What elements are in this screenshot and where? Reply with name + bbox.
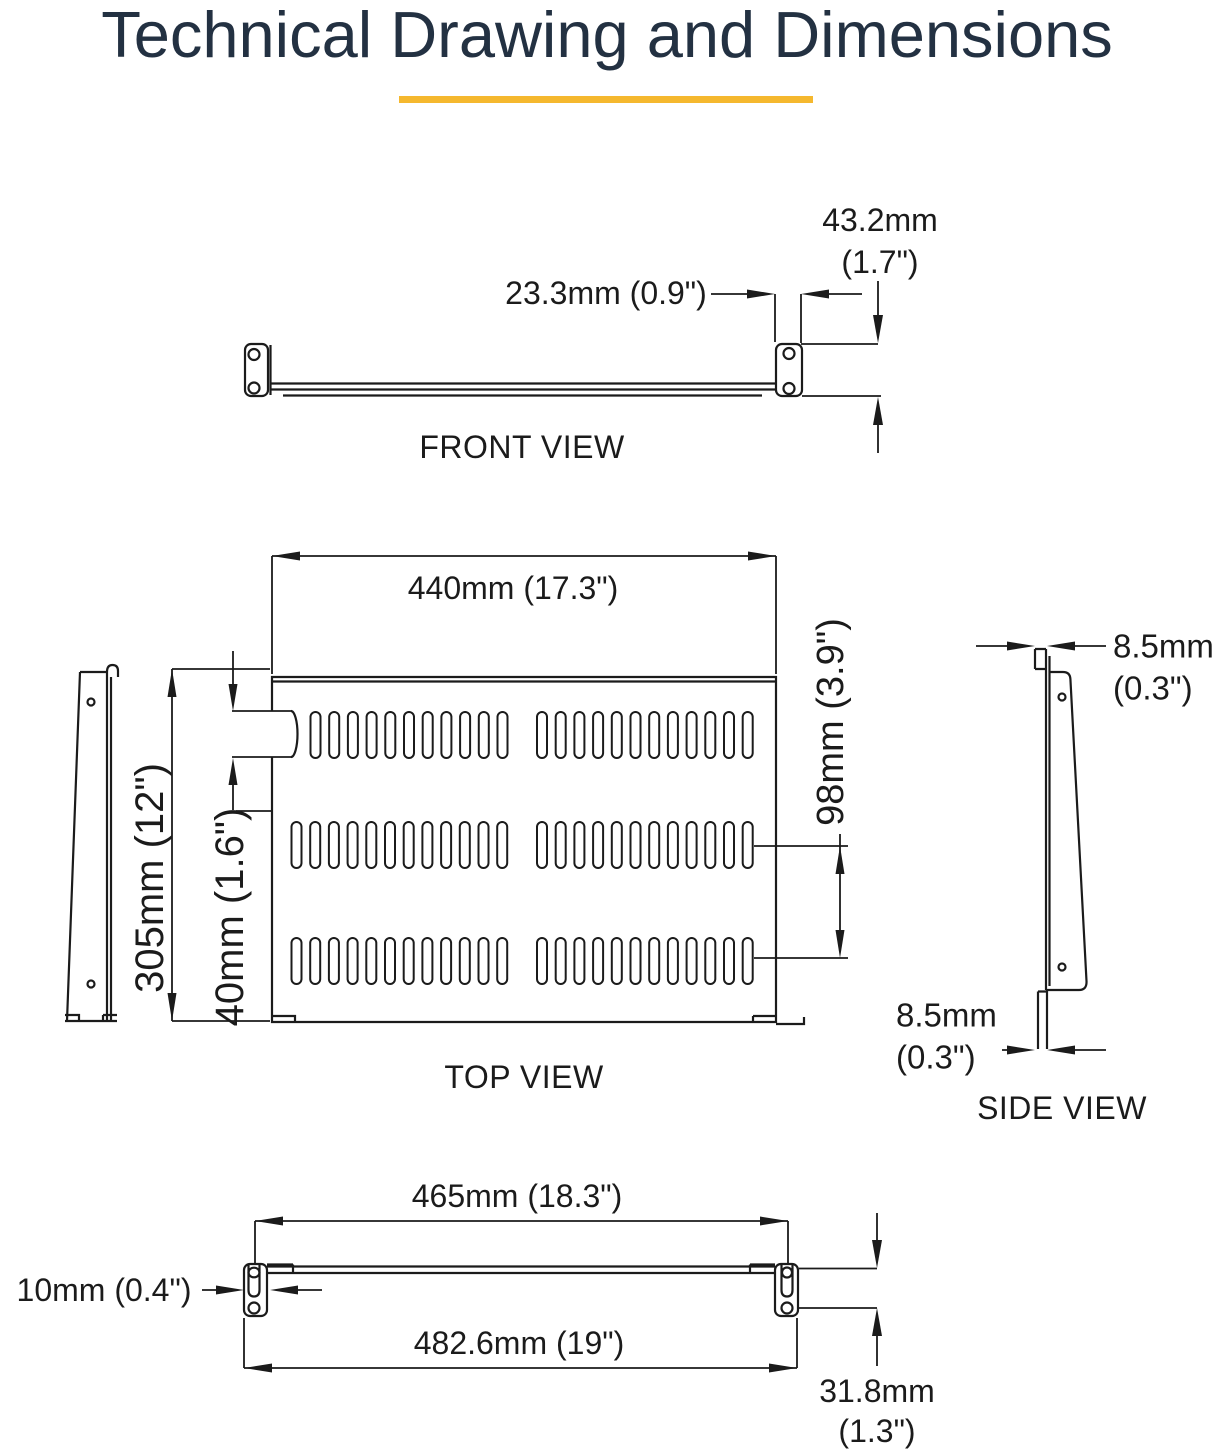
vent-slots	[292, 712, 753, 984]
vent-slot	[422, 822, 432, 868]
vent-slot	[422, 938, 432, 984]
vent-slot	[593, 938, 603, 984]
front-right-bracket	[776, 344, 802, 396]
vent-slot	[631, 938, 641, 984]
dim-height-43mm: 43.2mm (1.7")	[801, 202, 938, 453]
left-rail-hole-top	[88, 699, 95, 706]
arrowhead-up	[872, 1308, 882, 1336]
vent-slot	[292, 938, 302, 984]
arrowhead-left	[272, 552, 300, 561]
vent-slot	[631, 712, 641, 758]
dim-lines	[255, 1221, 788, 1263]
vent-slot	[366, 822, 376, 868]
rail-hole-bottom	[1059, 964, 1066, 971]
dim-notch-label: 40mm (1.6")	[208, 808, 252, 1027]
dim-height-31.8mm: 31.8mm (1.3")	[799, 1213, 935, 1449]
vent-slot	[498, 712, 508, 758]
side-view-part	[1035, 649, 1087, 1049]
vent-slot	[385, 938, 395, 984]
rail-profile	[1035, 649, 1087, 1049]
arrowhead-right	[216, 1286, 244, 1295]
arrowhead-right	[747, 290, 775, 299]
arrowhead-right	[769, 1364, 797, 1373]
dim-inner-width-465mm: 465mm (18.3")	[255, 1178, 788, 1263]
top-view-label: TOP VIEW	[444, 1059, 604, 1095]
dim-outer-width-label: 482.6mm (19")	[414, 1325, 625, 1361]
vent-slot	[441, 712, 451, 758]
dim-depth-label: 305mm (12")	[128, 763, 172, 993]
dim-outer-width-482mm: 482.6mm (19")	[244, 1318, 797, 1373]
dim-bottom-lip-8.5mm: 8.5mm (0.3")	[896, 997, 1106, 1076]
arrowhead-left	[1047, 642, 1075, 651]
vent-slot	[574, 938, 584, 984]
arrowhead-right	[1007, 642, 1035, 651]
bottom-right-hole-bottom	[782, 1303, 793, 1314]
bottom-view-part	[244, 1264, 798, 1316]
arrowhead-right	[760, 1217, 788, 1226]
bottom-left-hole-top	[249, 1268, 260, 1278]
arrowhead-down	[168, 993, 177, 1021]
top-view: 440mm (17.3") 305mm (12") 40mm (1.6") 98…	[65, 552, 852, 1096]
arrowhead-left	[244, 1364, 272, 1373]
arrowhead-left	[1047, 1046, 1075, 1055]
vent-slot	[574, 822, 584, 868]
front-right-hole-bottom	[784, 383, 795, 394]
arrowhead-down	[872, 1240, 882, 1268]
dim-lines	[232, 651, 291, 811]
vent-slot	[537, 938, 547, 984]
vent-slot	[441, 938, 451, 984]
vent-slot	[668, 822, 678, 868]
vent-slot	[404, 938, 414, 984]
vent-slot	[367, 712, 377, 758]
front-view: 23.3mm (0.9") 43.2mm (1.7") FRONT VIEW	[245, 202, 938, 465]
arrowhead-right	[1007, 1046, 1035, 1055]
vent-slot	[310, 822, 320, 868]
vent-slot	[460, 938, 470, 984]
vent-slot	[687, 938, 697, 984]
front-left-hole-top	[249, 349, 260, 360]
vent-slot	[460, 712, 470, 758]
vent-slot	[311, 712, 321, 758]
page-title: Technical Drawing and Dimensions	[101, 0, 1113, 71]
vent-slot	[649, 822, 659, 868]
dim-notch-40mm: 40mm (1.6")	[208, 651, 291, 1026]
vent-slot	[743, 822, 753, 868]
top-view-part	[65, 665, 804, 1024]
vent-slot	[556, 822, 566, 868]
vent-slot	[649, 938, 659, 984]
vent-slot	[705, 822, 715, 868]
vent-slot	[743, 712, 753, 758]
dim-height-mm-label: 31.8mm	[819, 1373, 935, 1409]
vent-slot	[479, 712, 489, 758]
vent-slot	[724, 938, 734, 984]
vent-slot	[404, 712, 414, 758]
vent-slot	[537, 822, 547, 868]
dim-vent-spacing-label: 98mm (3.9")	[810, 618, 852, 826]
vent-slot	[631, 822, 641, 868]
left-rail	[65, 665, 118, 1021]
vent-slot	[385, 712, 395, 758]
dim-bottom-lip-in-label: (0.3")	[896, 1039, 976, 1076]
vent-slot	[537, 712, 547, 758]
vent-slot	[612, 712, 622, 758]
arrowhead-right	[748, 552, 776, 561]
vent-slot	[649, 712, 659, 758]
arrowhead-down	[229, 684, 238, 711]
dim-top-lip-8.5mm: 8.5mm (0.3")	[976, 628, 1214, 707]
dim-lines	[754, 834, 848, 958]
left-rail-hole-bottom	[88, 981, 95, 988]
vent-slot	[743, 938, 753, 984]
front-view-part	[245, 344, 802, 396]
arrowhead-up	[229, 758, 238, 785]
title-underline	[399, 96, 813, 103]
arrowhead-up	[873, 397, 883, 425]
dim-top-lip-mm-label: 8.5mm	[1113, 628, 1214, 665]
vent-slot	[329, 938, 339, 984]
dim-lines	[711, 294, 862, 343]
vent-slot	[612, 938, 622, 984]
vent-slot	[497, 822, 507, 868]
vent-slot	[441, 822, 451, 868]
vent-slot	[612, 822, 622, 868]
vent-slot	[556, 712, 566, 758]
arrowhead-left	[270, 1286, 298, 1295]
notch-cap	[291, 711, 298, 757]
vent-slot	[348, 822, 358, 868]
vent-slot	[593, 712, 603, 758]
front-left-hole-bottom	[249, 383, 260, 394]
vent-slot	[687, 712, 697, 758]
vent-slot	[348, 938, 358, 984]
dim-vent-spacing-98mm: 98mm (3.9")	[754, 618, 852, 958]
vent-slot	[348, 712, 358, 758]
vent-slot	[310, 938, 320, 984]
vent-slot	[385, 822, 395, 868]
dim-height-in-label: (1.7")	[841, 244, 918, 280]
vent-slot	[556, 938, 566, 984]
arrowhead-up	[836, 846, 845, 874]
technical-drawing-page: Technical Drawing and Dimensions 23.3mm …	[0, 0, 1214, 1453]
vent-slot	[705, 712, 715, 758]
vent-slot	[668, 938, 678, 984]
front-shelf-bar	[271, 345, 777, 396]
vent-slot	[292, 822, 302, 868]
dim-lines	[799, 1213, 877, 1366]
front-view-label: FRONT VIEW	[419, 429, 625, 465]
arrowhead-up	[168, 669, 177, 697]
dim-lines	[801, 281, 881, 453]
bottom-left-hole-bottom	[249, 1303, 260, 1314]
vent-slot	[593, 822, 603, 868]
dim-top-lip-in-label: (0.3")	[1113, 670, 1193, 707]
vent-slot	[668, 712, 678, 758]
dim-inner-width-label: 465mm (18.3")	[412, 1178, 623, 1214]
vent-slot	[479, 938, 489, 984]
vent-slot	[724, 822, 734, 868]
vent-slot	[423, 712, 433, 758]
front-right-hole-top	[784, 348, 795, 359]
vent-slot	[687, 822, 697, 868]
dim-width-label: 440mm (17.3")	[408, 570, 619, 606]
dim-bottom-lip-mm-label: 8.5mm	[896, 997, 997, 1034]
arrowhead-left	[801, 290, 829, 299]
dim-flange-depth-label: 23.3mm (0.9")	[505, 275, 707, 311]
bottom-view: 465mm (18.3") 10mm (0.4") 482.6mm (19") …	[17, 1178, 935, 1449]
dim-bracket-width-label: 10mm (0.4")	[17, 1272, 192, 1308]
technical-drawing: Technical Drawing and Dimensions 23.3mm …	[0, 0, 1214, 1453]
dim-flange-depth-23mm: 23.3mm (0.9")	[505, 275, 862, 343]
vent-slot	[366, 938, 376, 984]
vent-slot	[329, 822, 339, 868]
vent-slot	[574, 712, 584, 758]
side-view: 8.5mm (0.3") 8.5mm (0.3") SIDE VIEW	[896, 628, 1214, 1127]
vent-slot	[329, 712, 339, 758]
dim-bracket-width-10mm: 10mm (0.4")	[17, 1272, 322, 1308]
vent-slot	[460, 822, 470, 868]
vent-slot	[497, 938, 507, 984]
vent-slot	[705, 938, 715, 984]
vent-slot	[404, 822, 414, 868]
bottom-bar	[267, 1265, 775, 1274]
vent-slot	[479, 822, 489, 868]
bottom-right-hole-top	[782, 1268, 792, 1278]
bottom-right-bracket	[775, 1264, 798, 1316]
dim-height-in-label: (1.3")	[838, 1413, 915, 1449]
vent-slot	[724, 712, 734, 758]
dim-width-440mm: 440mm (17.3")	[272, 552, 776, 675]
dim-height-mm-label: 43.2mm	[822, 202, 938, 238]
arrowhead-down	[836, 930, 845, 958]
arrowhead-down	[873, 315, 883, 343]
rail-hole-top	[1059, 694, 1066, 701]
side-view-label: SIDE VIEW	[977, 1090, 1147, 1126]
arrowhead-left	[255, 1217, 283, 1226]
